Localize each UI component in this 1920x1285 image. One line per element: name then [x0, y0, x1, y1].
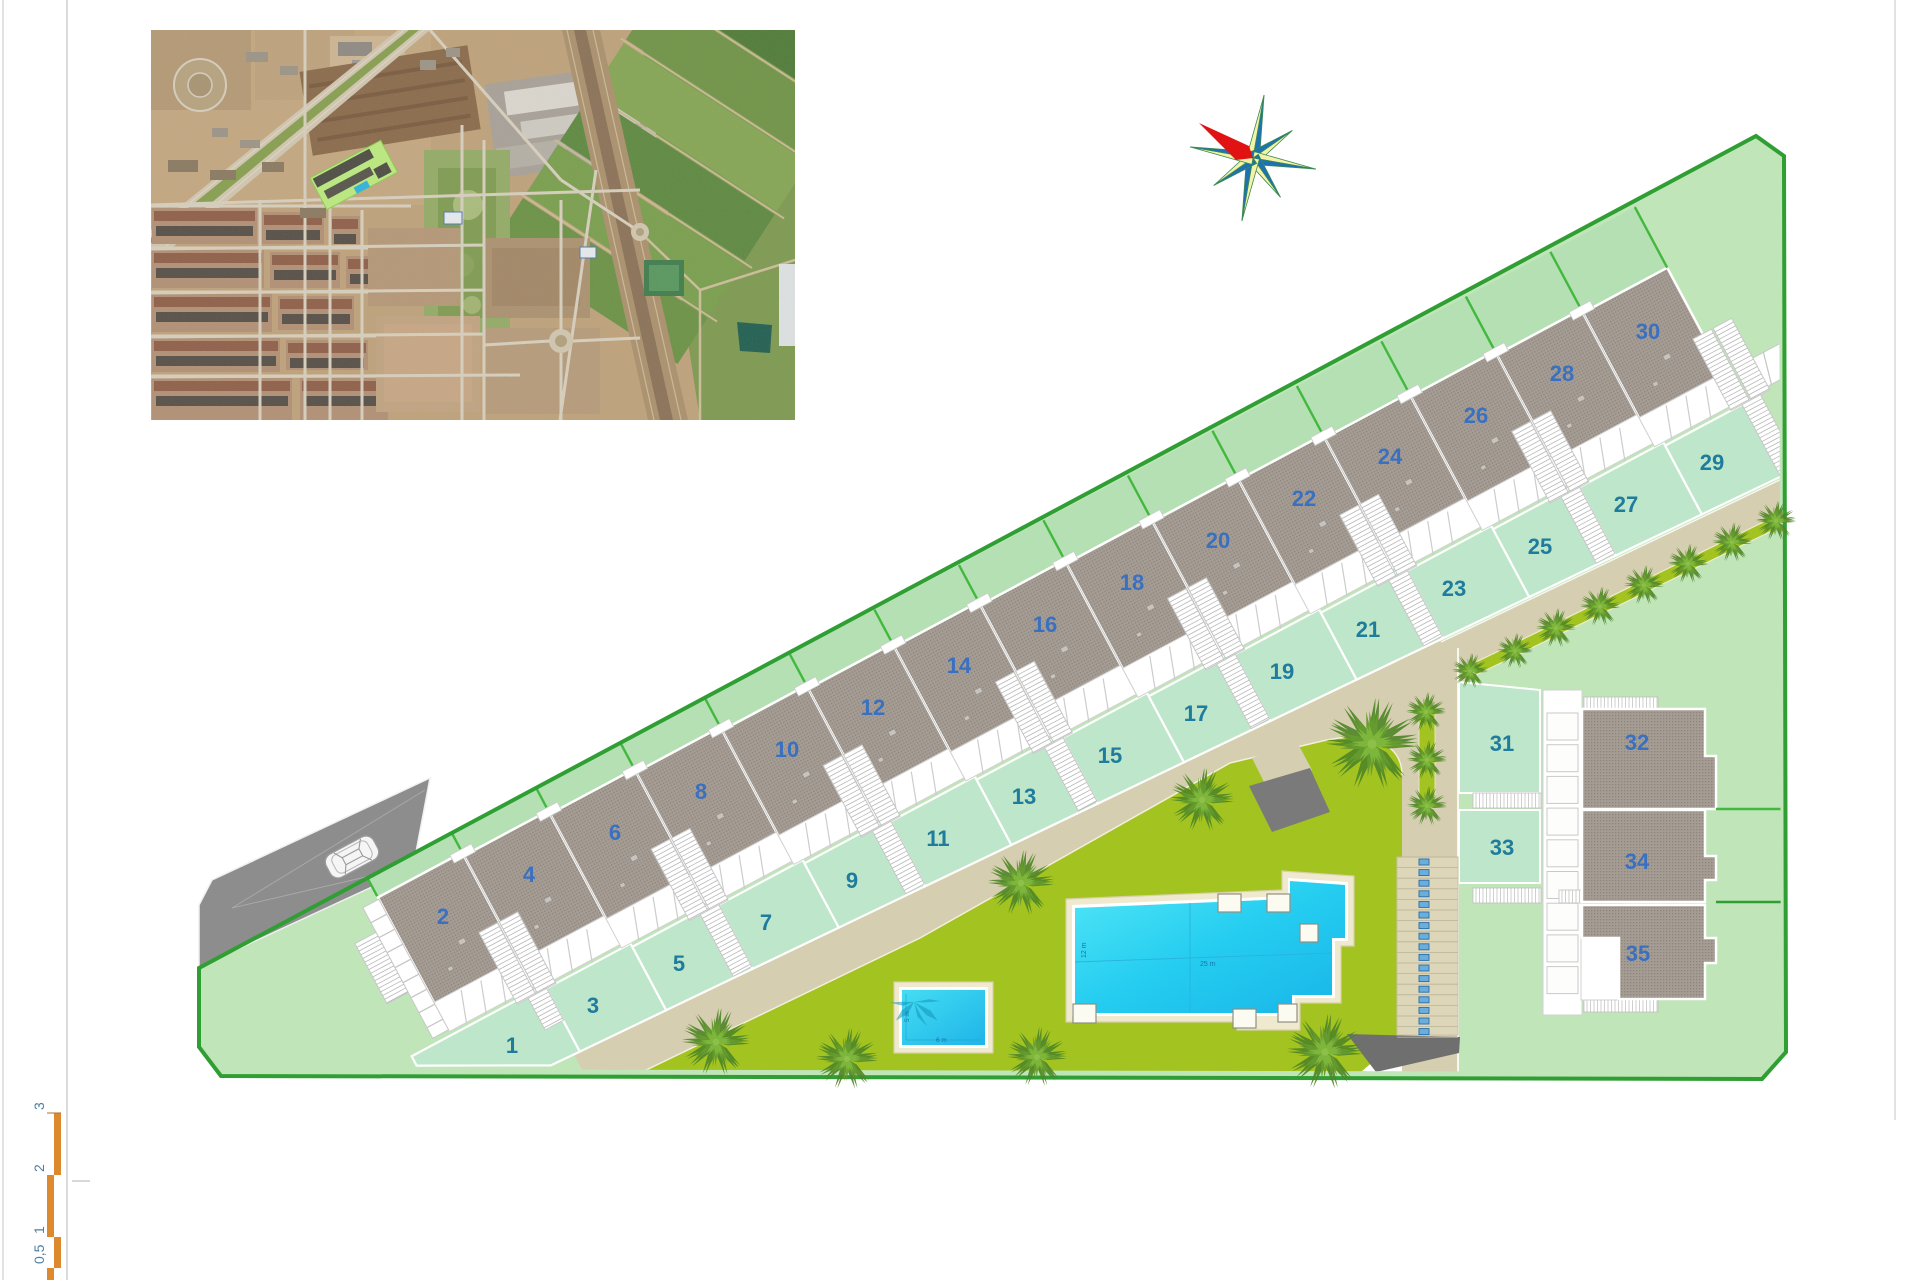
- svg-text:30: 30: [1636, 319, 1660, 344]
- svg-text:9: 9: [846, 868, 858, 893]
- svg-text:5: 5: [673, 951, 685, 976]
- svg-text:23: 23: [1442, 576, 1466, 601]
- svg-text:28: 28: [1550, 361, 1574, 386]
- svg-text:21: 21: [1356, 617, 1380, 642]
- svg-text:29: 29: [1700, 450, 1724, 475]
- svg-text:34: 34: [1625, 849, 1650, 874]
- svg-text:4: 4: [523, 862, 536, 887]
- svg-text:25 m: 25 m: [1200, 961, 1216, 968]
- svg-text:8: 8: [695, 779, 707, 804]
- svg-text:1: 1: [506, 1033, 518, 1058]
- svg-text:17: 17: [1184, 701, 1208, 726]
- svg-text:12 m: 12 m: [1081, 942, 1088, 958]
- svg-text:15: 15: [1098, 743, 1122, 768]
- svg-text:19: 19: [1270, 659, 1294, 684]
- svg-text:33: 33: [1490, 835, 1514, 860]
- svg-text:13: 13: [1012, 784, 1036, 809]
- svg-text:25: 25: [1528, 534, 1552, 559]
- svg-text:7: 7: [760, 910, 772, 935]
- svg-text:6 m: 6 m: [936, 1037, 947, 1044]
- svg-text:10: 10: [775, 737, 799, 762]
- svg-text:5 m: 5 m: [904, 1011, 911, 1022]
- svg-text:26: 26: [1464, 403, 1488, 428]
- svg-text:27: 27: [1614, 492, 1638, 517]
- svg-text:31: 31: [1490, 731, 1514, 756]
- svg-text:18: 18: [1120, 570, 1144, 595]
- svg-text:2: 2: [437, 904, 449, 929]
- svg-text:2: 2: [31, 1164, 47, 1172]
- svg-text:3: 3: [587, 993, 599, 1018]
- svg-text:35: 35: [1626, 941, 1650, 966]
- svg-text:16: 16: [1033, 612, 1057, 637]
- svg-text:6: 6: [609, 820, 621, 845]
- svg-text:11: 11: [926, 826, 949, 851]
- svg-text:1: 1: [31, 1226, 47, 1234]
- svg-text:14: 14: [947, 653, 972, 678]
- svg-text:22: 22: [1292, 486, 1316, 511]
- svg-text:12: 12: [861, 695, 885, 720]
- svg-text:3: 3: [31, 1102, 47, 1110]
- svg-text:24: 24: [1378, 444, 1403, 469]
- svg-text:32: 32: [1625, 730, 1649, 755]
- svg-text:0,5: 0,5: [31, 1244, 47, 1264]
- svg-text:20: 20: [1206, 528, 1230, 553]
